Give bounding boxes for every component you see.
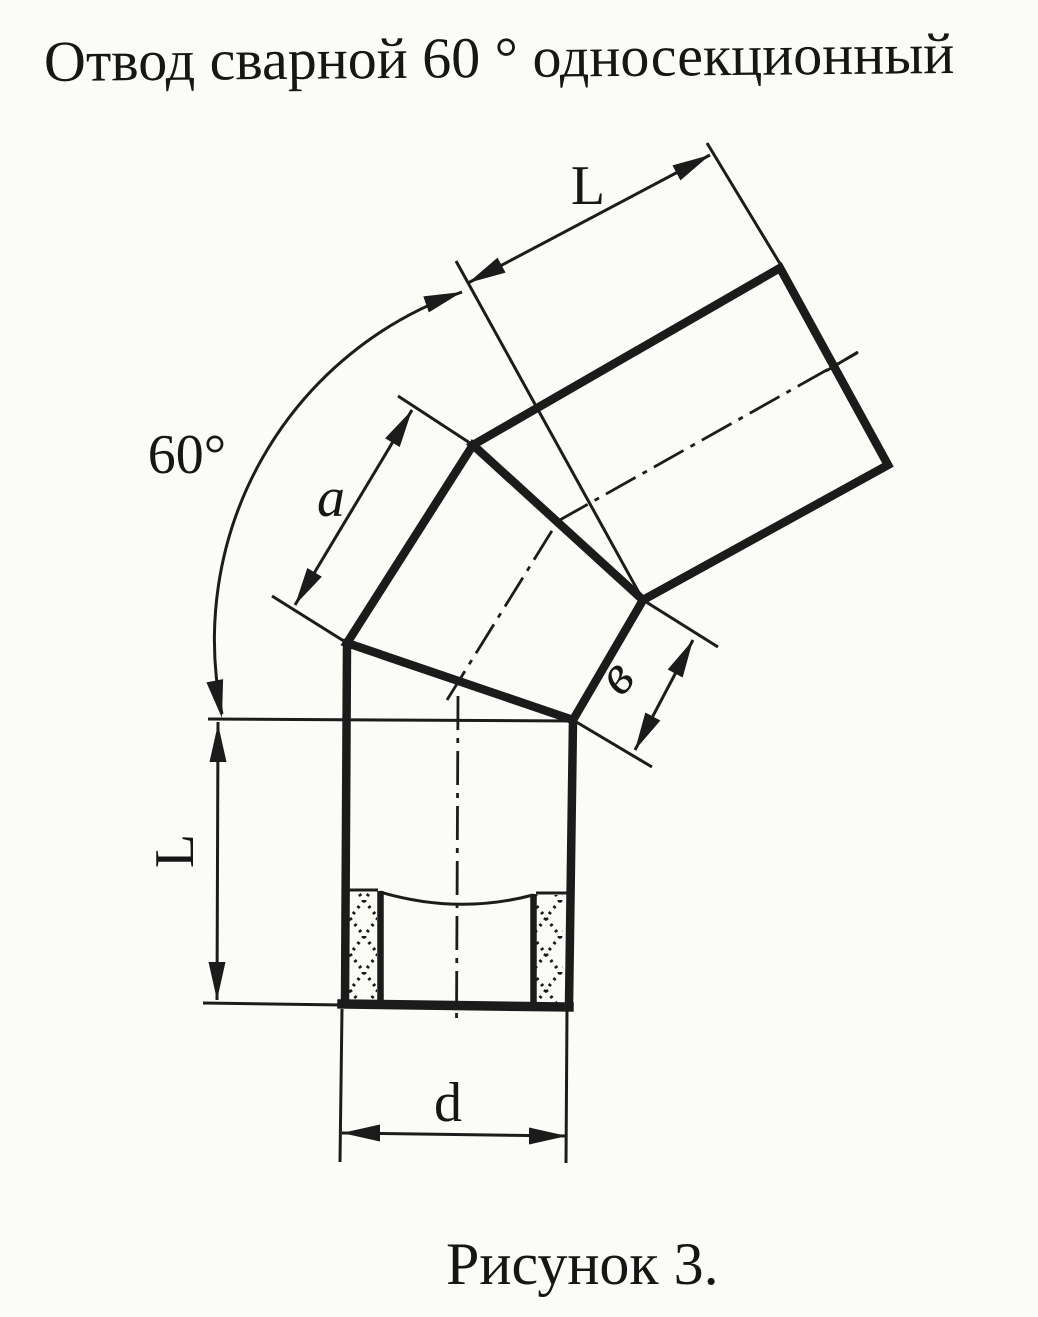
center-lines: [447, 352, 858, 1021]
arrowhead: [423, 284, 464, 312]
ext-d-left: [340, 1009, 342, 1162]
upper-pipe-outline: [473, 268, 888, 600]
ext-horizontal-top: [208, 719, 573, 721]
dimension-arrowheads: [206, 147, 714, 1144]
ext-a-lower: [272, 596, 347, 643]
ext-L-top-upper: [707, 143, 782, 267]
label-angle-60: 60°: [148, 424, 226, 486]
arrowhead: [672, 147, 714, 180]
dim-line-L-left: [217, 722, 218, 1000]
label-a: a: [317, 467, 345, 529]
arrowhead: [288, 568, 322, 609]
label-L-top: L: [571, 155, 605, 217]
centerline-upper: [558, 353, 857, 521]
arrowhead: [209, 962, 226, 1000]
scanned-page: Отвод сварной 60 ° односекционный: [0, 0, 1038, 1317]
upper-pipe-section: [473, 268, 888, 600]
arrowhead: [668, 636, 701, 678]
arrowhead: [342, 1125, 380, 1142]
vertical-pipe-left-wall: [345, 643, 347, 1004]
weld-hatch-right: [537, 895, 563, 1004]
figure-caption: Рисунок 3.: [446, 1230, 719, 1299]
weld-hatch-left: [349, 892, 377, 1002]
elbow-technical-drawing: L 60° a в L d: [0, 0, 1038, 1317]
arrowhead: [206, 679, 230, 720]
centerline-vertical: [457, 696, 459, 1021]
label-d: d: [434, 1072, 462, 1134]
arrowhead: [627, 712, 660, 754]
arrowhead: [210, 724, 227, 762]
ext-a-upper: [398, 396, 473, 445]
centerline-middle: [447, 521, 558, 700]
ext-v-upper: [643, 600, 718, 647]
ext-L-top-lower: [456, 261, 643, 600]
label-L-left: L: [144, 834, 206, 868]
ext-horizontal-bottom: [203, 1003, 343, 1005]
arrowhead: [385, 406, 419, 447]
ext-d-right: [566, 1010, 567, 1163]
arrowhead: [529, 1128, 567, 1145]
dimension-lines: [214, 155, 710, 1136]
vertical-pipe-right-wall: [569, 720, 573, 1005]
